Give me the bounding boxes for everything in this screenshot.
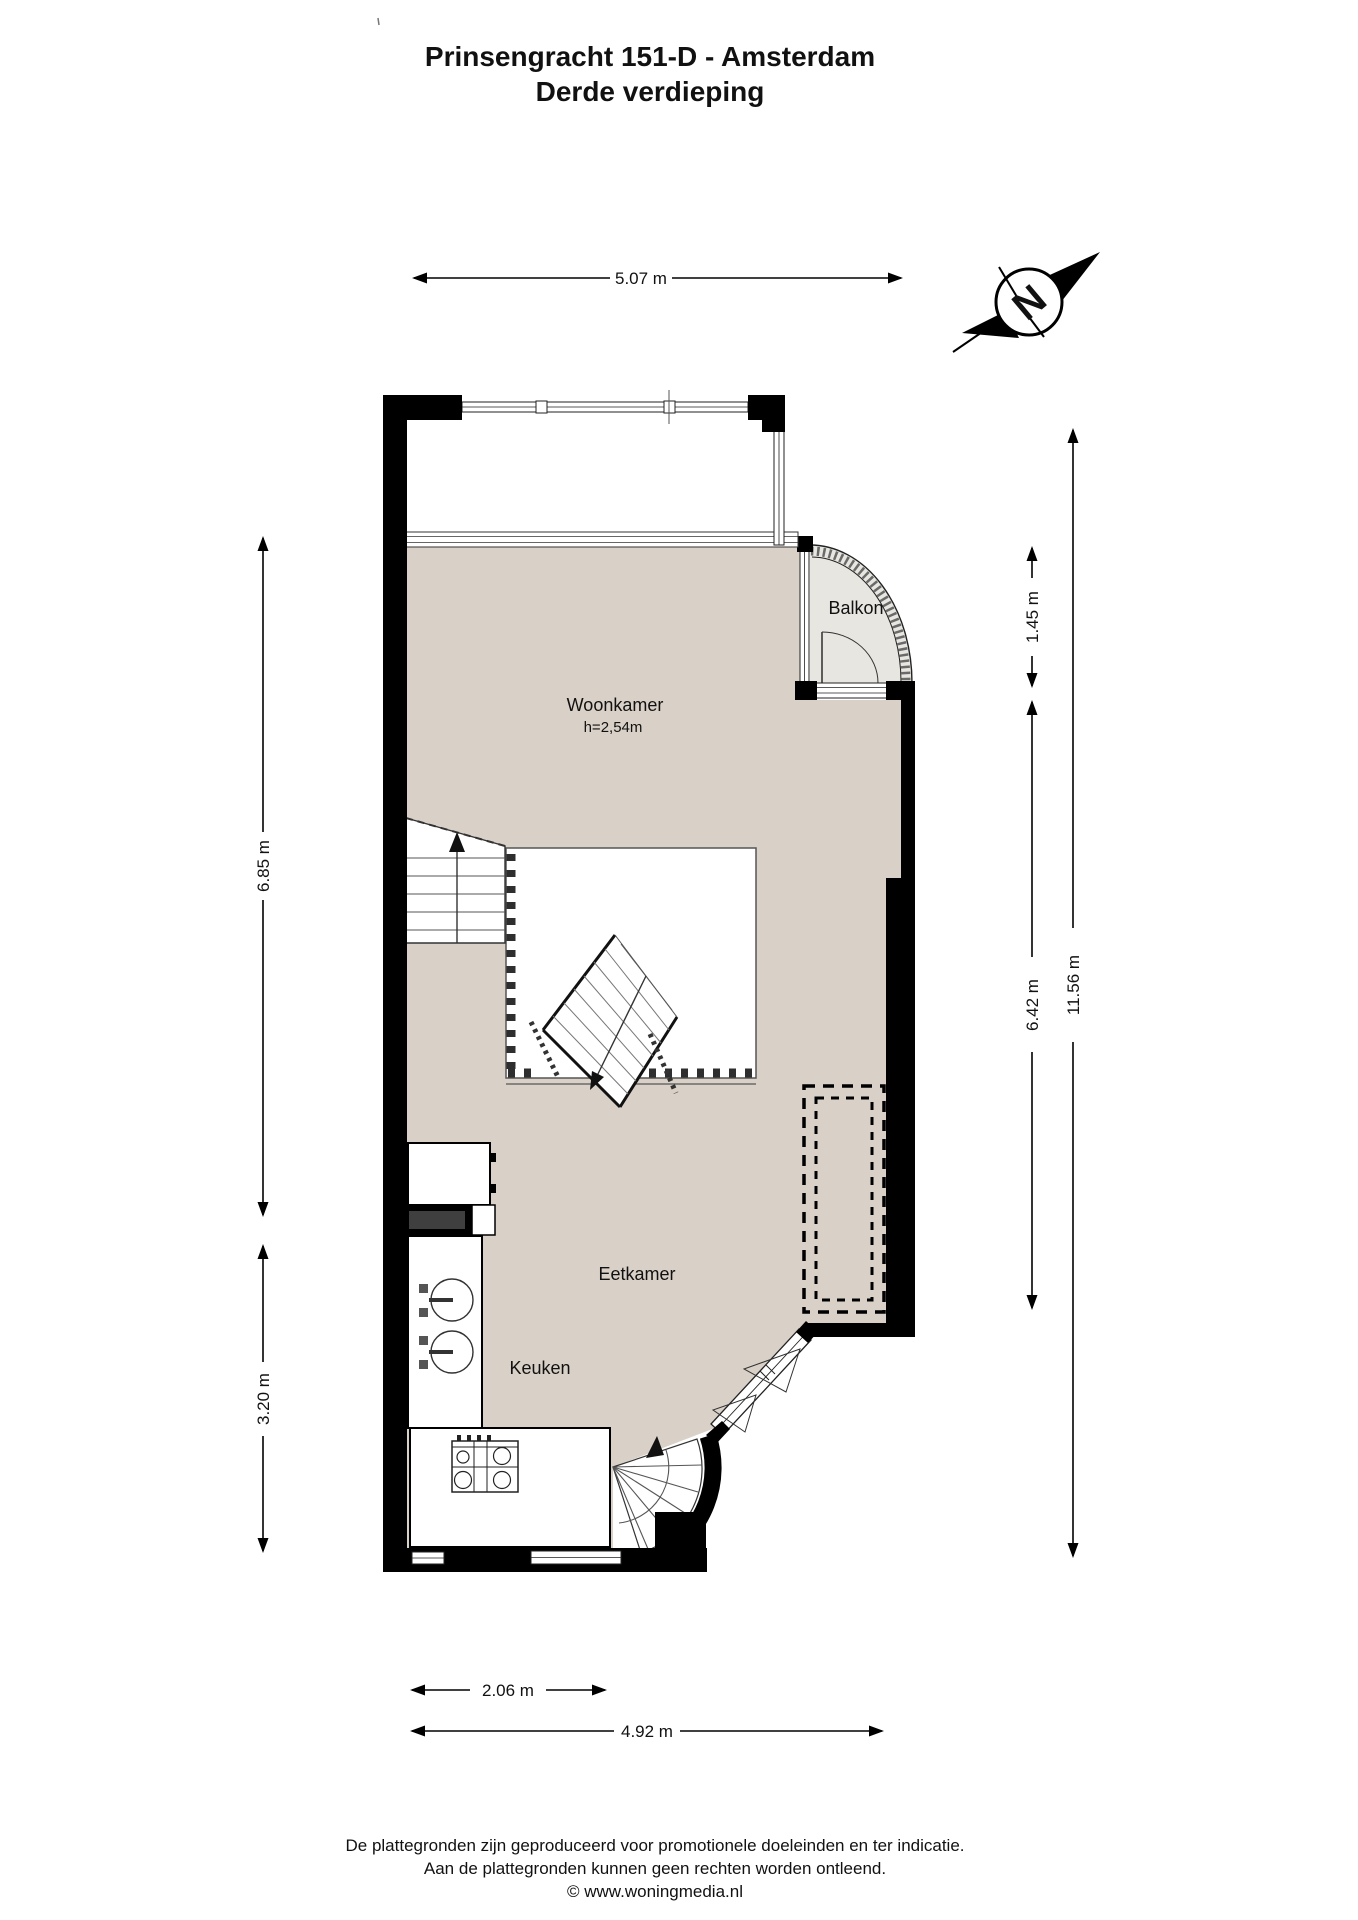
page-subtitle: Derde verdieping	[536, 76, 765, 107]
page-title: Prinsengracht 151-D - Amsterdam	[425, 41, 875, 72]
footer-copyright: © www.woningmedia.nl	[567, 1882, 743, 1901]
dim-label-bottom-total: 4.92 m	[621, 1722, 673, 1741]
balcony-rail-top-post	[797, 536, 813, 552]
cabinet-hinge-top	[490, 1153, 496, 1162]
right-wall-notch	[901, 1337, 915, 1371]
floorplan-page: Prinsengracht 151-D - Amsterdam Derde ve…	[0, 0, 1358, 1920]
top-window-mullion-1	[536, 401, 547, 413]
kitchen-column	[472, 1205, 495, 1235]
stray-tick-mark	[378, 18, 379, 25]
dim-label-left-upper: 6.85 m	[254, 840, 273, 892]
room-label-woonkamer: Woonkamer	[567, 695, 664, 715]
room-label-balkon: Balkon	[828, 598, 883, 618]
front-facade	[405, 390, 798, 547]
north-compass: N	[953, 252, 1100, 352]
left-wall	[383, 395, 407, 1572]
room-label-keuken: Keuken	[509, 1358, 570, 1378]
top-right-corner-wall	[748, 395, 785, 432]
cabinet-hinge-bottom	[490, 1184, 496, 1193]
right-wall-lower	[886, 878, 915, 1337]
title-block: Prinsengracht 151-D - Amsterdam Derde ve…	[378, 18, 875, 107]
kitchen-partition-fill	[409, 1211, 465, 1229]
ceiling-height-note: h=2,54m	[584, 719, 643, 736]
footer-disclaimer-2: Aan de plattegronden kunnen geen rechten…	[424, 1859, 886, 1878]
living-room-window-band	[405, 532, 798, 547]
dim-label-top-width: 5.07 m	[615, 269, 667, 288]
footer: De plattegronden zijn geproduceerd voor …	[345, 1836, 964, 1901]
balcony-doorway-band	[810, 683, 890, 698]
stove-icon	[452, 1435, 518, 1492]
dim-label-left-lower: 3.20 m	[254, 1373, 273, 1425]
room-label-eetkamer: Eetkamer	[598, 1264, 675, 1284]
top-left-corner-wall	[383, 395, 462, 420]
balcony-wall-block-left	[795, 681, 817, 700]
floorplan-drawing: Prinsengracht 151-D - Amsterdam Derde ve…	[0, 0, 1358, 1920]
right-wall-upper	[901, 695, 915, 880]
balcony	[795, 536, 915, 700]
footer-disclaimer-1: De plattegronden zijn geproduceerd voor …	[345, 1836, 964, 1855]
right-wall-bottom-band	[806, 1323, 915, 1337]
kitchen-cabinet	[408, 1143, 490, 1205]
dim-label-right-inner: 6.42 m	[1023, 979, 1042, 1031]
winder-stair-corner-wall	[655, 1512, 706, 1552]
dim-label-right-balcony: 1.45 m	[1023, 591, 1042, 643]
dim-label-right-total: 11.56 m	[1064, 955, 1083, 1015]
dim-label-bottom-kitchen: 2.06 m	[482, 1681, 534, 1700]
